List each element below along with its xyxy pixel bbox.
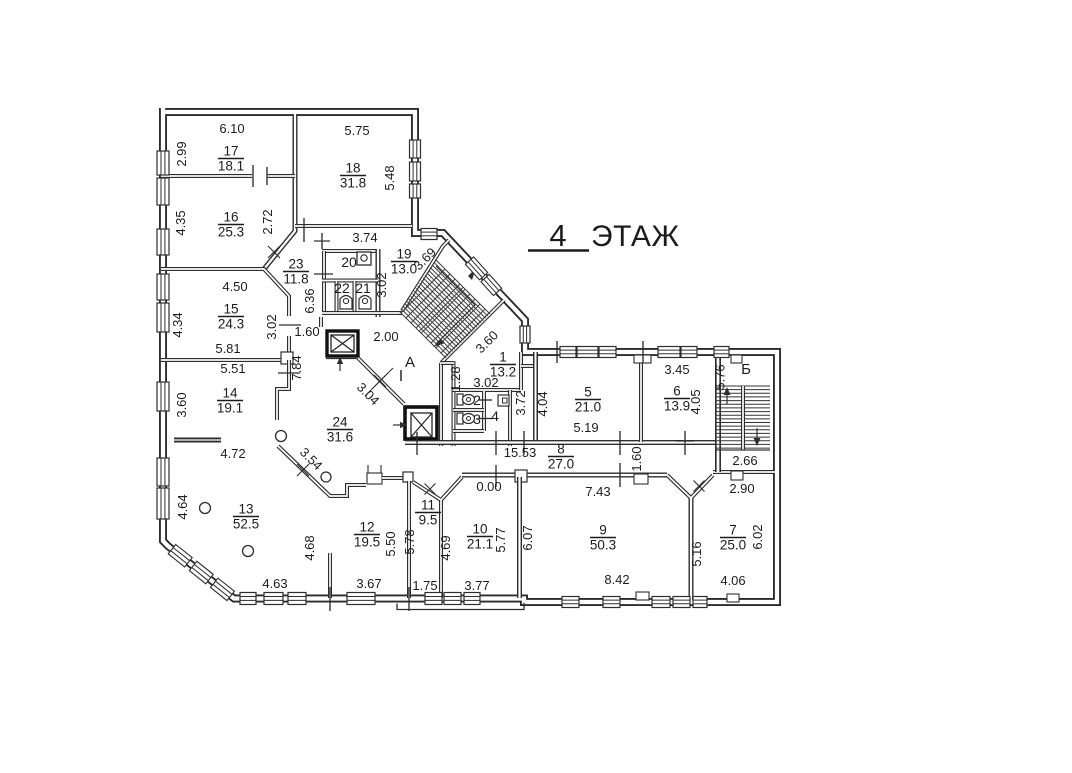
svg-text:25.3: 25.3 — [218, 225, 244, 240]
svg-text:3.77: 3.77 — [464, 578, 489, 593]
svg-text:2.90: 2.90 — [729, 481, 754, 496]
svg-text:11: 11 — [421, 498, 435, 513]
svg-text:21.0: 21.0 — [575, 400, 601, 415]
svg-text:5.48: 5.48 — [382, 165, 397, 190]
svg-text:4.35: 4.35 — [173, 210, 188, 235]
svg-text:21: 21 — [355, 280, 371, 296]
svg-text:31.6: 31.6 — [327, 430, 353, 445]
svg-text:9.5: 9.5 — [419, 513, 438, 528]
svg-text:4.68: 4.68 — [302, 535, 317, 560]
svg-text:13: 13 — [238, 502, 253, 517]
svg-text:3.74: 3.74 — [352, 230, 377, 245]
svg-text:27.0: 27.0 — [548, 457, 574, 472]
svg-text:11.8: 11.8 — [283, 272, 308, 287]
svg-text:52.5: 52.5 — [233, 517, 259, 532]
svg-text:22: 22 — [334, 280, 350, 296]
svg-text:1.60: 1.60 — [629, 446, 644, 471]
svg-text:4.05: 4.05 — [688, 389, 703, 414]
svg-text:4.50: 4.50 — [222, 279, 247, 294]
svg-text:19.1: 19.1 — [217, 401, 243, 416]
svg-text:9: 9 — [599, 523, 607, 538]
svg-text:3.60: 3.60 — [174, 392, 189, 417]
svg-text:13.9: 13.9 — [664, 399, 690, 414]
svg-text:12: 12 — [359, 520, 374, 535]
svg-text:3.02: 3.02 — [473, 375, 498, 390]
svg-text:4.34: 4.34 — [170, 312, 185, 337]
svg-text:19.5: 19.5 — [354, 535, 380, 550]
svg-text:24: 24 — [332, 415, 348, 430]
svg-text:15.53: 15.53 — [504, 445, 537, 460]
svg-text:5.76: 5.76 — [713, 364, 728, 389]
svg-text:4.06: 4.06 — [720, 573, 745, 588]
svg-text:2: 2 — [473, 392, 481, 408]
svg-text:4.72: 4.72 — [220, 446, 245, 461]
svg-text:8.42: 8.42 — [604, 572, 629, 587]
svg-text:Б: Б — [741, 361, 751, 378]
svg-text:7: 7 — [729, 523, 737, 538]
svg-text:20: 20 — [341, 254, 357, 270]
svg-text:3.67: 3.67 — [356, 576, 381, 591]
svg-text:4.04: 4.04 — [535, 391, 550, 416]
svg-text:А: А — [405, 354, 415, 371]
svg-text:6: 6 — [673, 384, 681, 399]
svg-text:5.81: 5.81 — [215, 341, 240, 356]
svg-text:18.1: 18.1 — [218, 159, 244, 174]
svg-text:4.63: 4.63 — [262, 576, 287, 591]
svg-text:4.69: 4.69 — [438, 535, 453, 560]
svg-text:0.00: 0.00 — [476, 479, 501, 494]
svg-text:2.72: 2.72 — [260, 209, 275, 234]
svg-text:4: 4 — [549, 218, 566, 253]
svg-text:4.64: 4.64 — [175, 494, 190, 519]
svg-text:6.36: 6.36 — [302, 288, 317, 313]
svg-text:1: 1 — [499, 350, 507, 365]
svg-text:6.07: 6.07 — [520, 525, 535, 550]
svg-text:16: 16 — [223, 210, 238, 225]
svg-text:18: 18 — [345, 161, 360, 176]
svg-text:50.3: 50.3 — [590, 538, 616, 553]
svg-text:3.45: 3.45 — [664, 362, 689, 377]
svg-text:2.99: 2.99 — [174, 141, 189, 166]
svg-text:1.60: 1.60 — [294, 324, 319, 339]
svg-text:ЭТАЖ: ЭТАЖ — [591, 220, 680, 253]
svg-text:1.75: 1.75 — [412, 578, 437, 593]
svg-text:3.02: 3.02 — [374, 272, 389, 297]
svg-text:19: 19 — [396, 247, 411, 262]
svg-text:10: 10 — [472, 522, 487, 537]
svg-text:7.84: 7.84 — [289, 355, 304, 380]
svg-text:17: 17 — [223, 144, 238, 159]
svg-text:5: 5 — [584, 385, 592, 400]
svg-text:23: 23 — [288, 257, 303, 272]
svg-text:5.50: 5.50 — [383, 531, 398, 556]
svg-text:7.43: 7.43 — [585, 484, 610, 499]
svg-text:5.78: 5.78 — [402, 529, 417, 554]
svg-text:3.72: 3.72 — [513, 390, 528, 415]
svg-text:4: 4 — [491, 408, 499, 424]
svg-text:5.77: 5.77 — [493, 527, 508, 552]
svg-text:15: 15 — [223, 302, 238, 317]
svg-text:1.28: 1.28 — [448, 366, 463, 391]
svg-text:31.8: 31.8 — [340, 176, 366, 191]
svg-text:24.3: 24.3 — [218, 317, 244, 332]
svg-text:21.1: 21.1 — [467, 537, 493, 552]
svg-text:5.16: 5.16 — [689, 541, 704, 566]
svg-text:2.66: 2.66 — [732, 453, 757, 468]
svg-text:3: 3 — [473, 411, 481, 427]
svg-text:6.10: 6.10 — [219, 121, 244, 136]
svg-text:5.51: 5.51 — [220, 361, 245, 376]
svg-text:25.0: 25.0 — [720, 538, 746, 553]
svg-text:6.02: 6.02 — [750, 524, 765, 549]
svg-text:14: 14 — [222, 386, 238, 401]
svg-text:2.00: 2.00 — [373, 329, 398, 344]
svg-text:5.75: 5.75 — [344, 123, 369, 138]
svg-text:5.19: 5.19 — [573, 420, 598, 435]
svg-text:8: 8 — [557, 442, 565, 457]
svg-text:3.02: 3.02 — [264, 314, 279, 339]
